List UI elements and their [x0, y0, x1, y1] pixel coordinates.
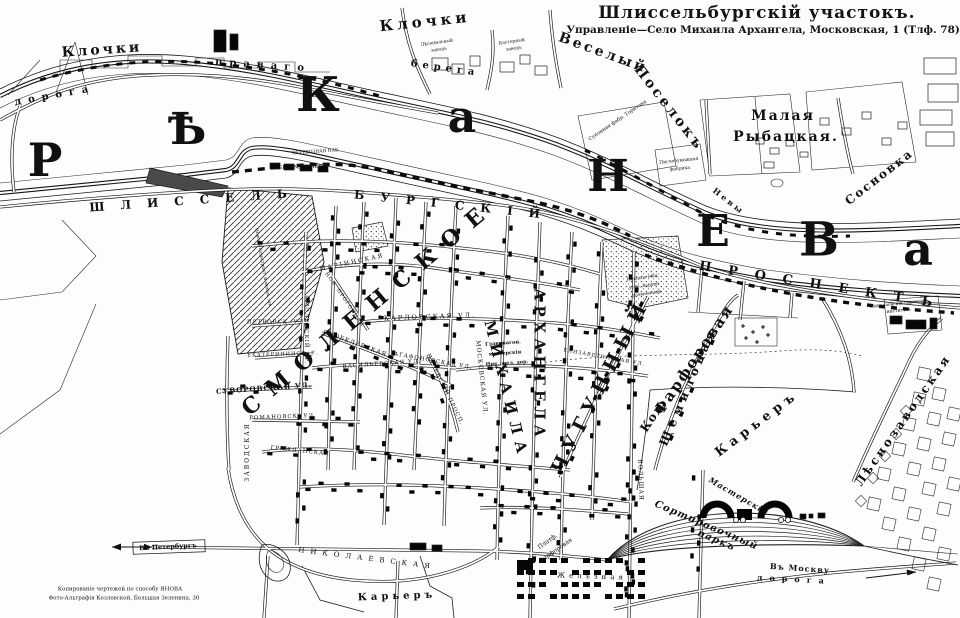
label-farforovaya: Фарфоровая	[652, 302, 737, 418]
label-doroga-bank: дорога	[14, 84, 96, 108]
label-zavodskaya: ЗАВОДСКАЯ	[245, 422, 251, 481]
label-grazhdanskaya: ГРАЖДАНСКАЯ	[270, 446, 329, 458]
credit-line-1: Копированіе чертежей по способу ЯНОВА	[58, 587, 182, 593]
label-pischebumazhnaya: Писчебумажная	[659, 158, 699, 167]
credit-line-2: Фото-Альграфія Козловской, Большая Зелен…	[49, 596, 200, 602]
label-tornton: Суконная фабр. Торнтона	[588, 100, 648, 142]
label-shlissel: ШЛИССЕЛЬ	[89, 187, 303, 214]
map-root: Шлиссельбургскій участокъ. Управленіе—Се…	[0, 0, 960, 618]
river-letter: Ѣ	[168, 108, 207, 152]
label-malaya: Малая	[751, 109, 815, 123]
label-marinskaya: МАРІИНСКАЯ	[319, 253, 385, 273]
label-berega: берега	[410, 59, 480, 79]
label-vasilievskaya: ВАСИЛЬЕВСКАЯ УЛ.	[343, 360, 422, 371]
river-letter: Р	[28, 137, 63, 183]
label-chugunnyi: ЧУГУННЫЙ	[548, 295, 653, 476]
label-v-peterburg: Въ Петербургъ	[139, 542, 197, 552]
label-sortirovochnyi: Сортировочный	[653, 500, 759, 553]
label-lesnozavodskaya: Лѣснозаводская	[853, 352, 953, 488]
map-subtitle: Управленіе—Село Михаила Архангела, Моско…	[565, 24, 960, 36]
label-fabrika: фабрика	[670, 167, 691, 174]
label-bezymen-per: БЕЗЫМЕН. ПЕР.	[279, 165, 324, 172]
river-letter: Н	[587, 155, 629, 199]
label-institut: институтъ	[887, 308, 912, 315]
label-bolshaya: БОЛЬШАЯ	[636, 459, 643, 501]
river-letter: а	[448, 96, 477, 140]
label-nikolaevskaya-rw: НИКОЛАЕВСКАЯ	[298, 547, 436, 571]
label-sosnovka: Сосновка	[843, 147, 915, 207]
label-petrovskaya: ПЕТРОВСК. УЛ.	[247, 320, 307, 326]
label-zheleznaya: Желѣзная	[557, 572, 627, 581]
label-razvlecheniy: развлеченій	[632, 291, 661, 300]
label-poselok: Поселокъ	[631, 63, 706, 154]
label-pravago: праваго	[215, 58, 311, 75]
label-perevoznaya: ПЕРЕВОЗНАЯ НАБ.	[292, 149, 340, 157]
label-kastornyi-zavod: заводъ	[506, 47, 522, 54]
label-klochki-west: Клочки	[61, 40, 142, 60]
label-klochki-east: Клочки	[379, 10, 471, 34]
river-letter: Е	[696, 210, 730, 254]
river-letter: К	[296, 71, 340, 119]
label-rybatskaya: Рыбацкая.	[733, 130, 839, 144]
labels-layer: Шлиссельбургскій участокъ. Управленіе—Се…	[0, 0, 960, 618]
label-doroga-south: дорога	[757, 573, 831, 585]
label-karier-east: Карьеръ	[713, 389, 801, 460]
label-nevskiy-zavod: Невскій судостроит. и механ. зав.	[253, 228, 271, 308]
label-moskovskaya: МОСКОВСКАЯ УЛ.	[474, 340, 488, 416]
label-lesopilnyi-zavod: заводъ	[431, 48, 447, 55]
river-letter: В	[799, 217, 839, 264]
map-title: Шлиссельбургскій участокъ.	[557, 3, 957, 23]
label-smolenskiy-pr: СМОЛЕНСКІЙ ПР.	[302, 295, 308, 364]
label-romanovskaya: РОМАНОВСК. УЛ.	[249, 414, 317, 422]
label-masterskiya: Мастерскія	[708, 476, 771, 517]
river-letter: а	[903, 226, 933, 272]
label-karlovskaya: КАРЛОВСКАЯ УЛ.	[384, 312, 476, 322]
label-arkhangela: АРХАНГЕЛА	[532, 288, 547, 442]
label-karier-south: Карьеръ	[358, 591, 437, 604]
